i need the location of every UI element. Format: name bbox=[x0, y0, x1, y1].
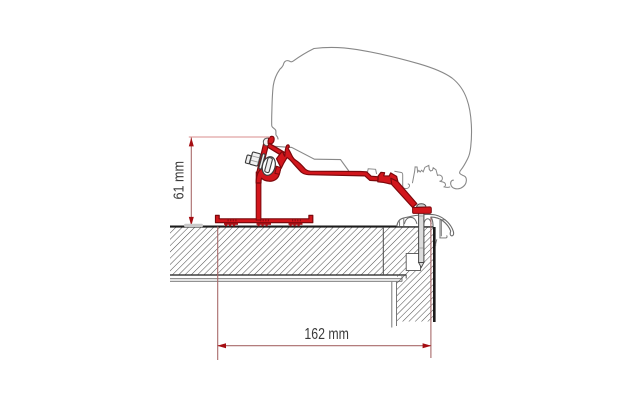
svg-text:61 mm: 61 mm bbox=[171, 161, 188, 200]
svg-text:162 mm: 162 mm bbox=[304, 326, 349, 343]
